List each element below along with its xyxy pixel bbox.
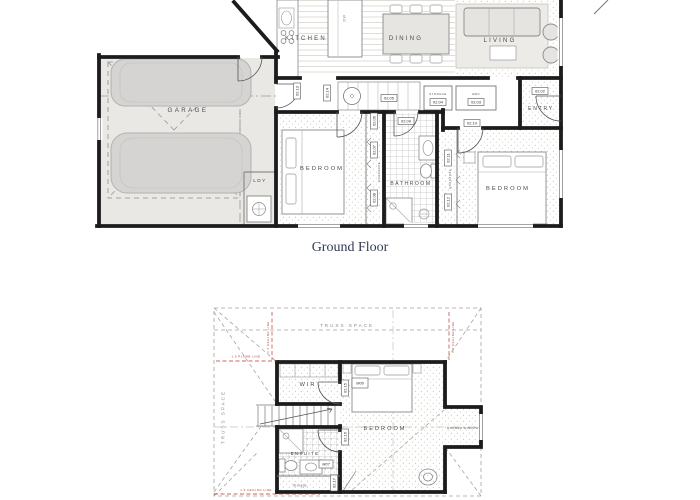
bathroom-label: BATHROOM [390,181,431,187]
storage-label: Storage [293,484,307,488]
attic-bedroom-label: BEDROOM [364,426,407,432]
tag-02-11: 02.11 [445,152,450,162]
tag-02-14: 02.14 [324,87,329,98]
entry-label: ENTRY [528,106,554,112]
tag-02-13: 02.13 [294,85,299,96]
living-label: LIVING [484,38,517,44]
wardrobe-left-label: WARDROBE [377,162,381,182]
tag-02-03: 02.03 [471,99,482,104]
tag-02-02: 02.02 [535,88,546,93]
truss-space-top-label: TRUSS SPACE [320,323,374,328]
floor-plan-page: GARAGE LDY DW [0,0,700,500]
tag-02-10: 02.10 [467,120,478,125]
first-floor-plan: TRUSS SPACE TRUSS SPACE WIR BEDROOM ENSU… [214,308,485,496]
car-1 [111,59,251,106]
tag-02-08: 02.08 [371,192,376,203]
tag-02-04: 02.04 [433,99,444,104]
car-2 [111,133,251,193]
bedroom-left-label: BEDROOM [300,166,344,172]
tag-02-17: 02.17 [331,477,336,488]
tag-02-06: 02.06 [371,115,376,126]
tag-02-05: 02.05 [384,95,395,100]
living-furniture [456,4,559,68]
bed-left-bedroom [282,130,344,214]
wir-label: WIR [300,382,317,388]
laundry-label: LDY [253,178,267,184]
ceiling-line-bottom-label: 1.5 CEILING LINE [240,488,272,492]
tag-02-16: 02.16 [342,431,347,442]
wardrobe-right-label: WARDROBE [448,169,452,189]
ground-floor-plan: GARAGE LDY DW [97,0,609,230]
plumb-line-label: 1.5 PLUMB LINE [231,355,260,359]
ensuite-label: ENSUITE [291,451,320,456]
tag-02-09: 02.09 [401,118,412,123]
tag-02-07: 02.07 [371,144,376,155]
dormer-window-label: DORMER WINDOW [447,426,479,430]
storage-closet-label: STORAGE [429,92,447,96]
north-arrow-fragment [594,0,608,14]
tag-02-15: 02.15 [342,382,347,393]
ceiling-line-left-label: 1.5 CEILING LINE [266,321,270,353]
tag-02-12: 02.12 [445,196,450,207]
dining-label: DINING [389,36,423,42]
ceiling-line-right-label: 1.5 CEILING LINE [451,321,455,353]
tag-m07: M07 [322,463,330,467]
ground-floor-caption: Ground Floor [312,240,389,255]
hall-closets: STORAGE HWC [338,82,496,110]
tag-m06: M06 [356,382,364,386]
dining-furniture [383,5,449,63]
floor-plan-drawing: GARAGE LDY DW [0,0,700,500]
hwc-closet-label: HWC [472,92,480,96]
kitchen-label: KITCHEN [285,36,327,42]
truss-space-left-label: TRUSS SPACE [221,390,226,444]
bedroom-right-label: BEDROOM [486,186,530,192]
dishwasher-label: DW [343,14,347,21]
garage-label: GARAGE [168,107,209,114]
